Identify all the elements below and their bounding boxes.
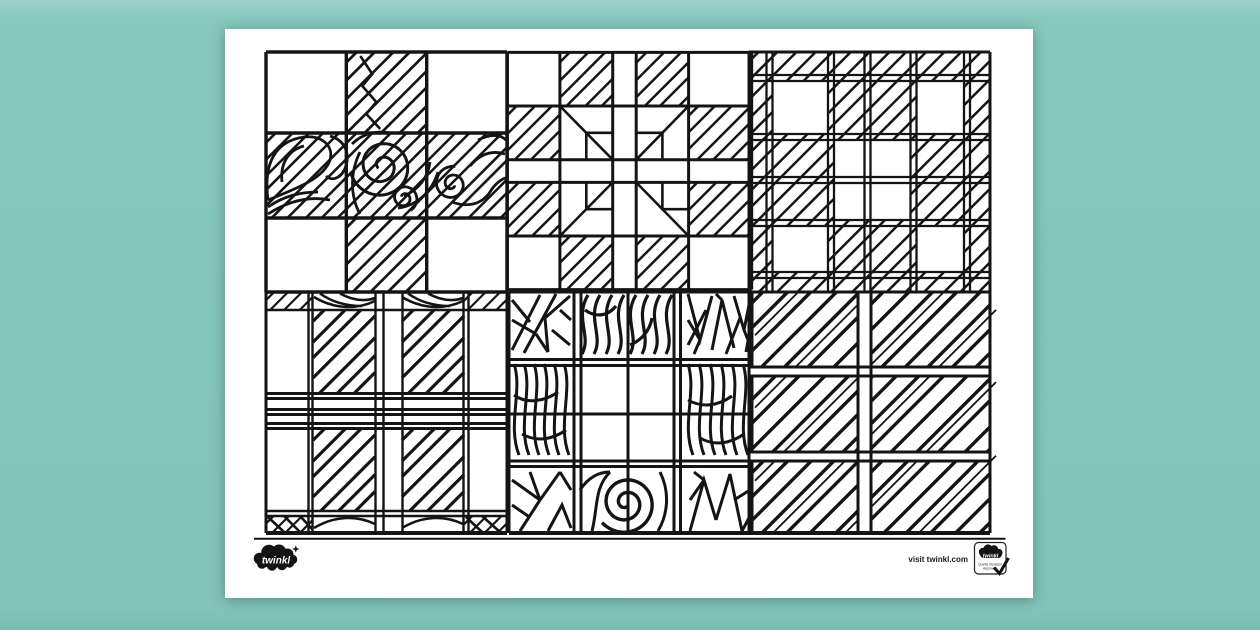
svg-text:twinkl: twinkl	[262, 556, 291, 567]
svg-text:visit twinkl.com: visit twinkl.com	[908, 555, 968, 564]
svg-text:twinkl: twinkl	[983, 554, 999, 560]
